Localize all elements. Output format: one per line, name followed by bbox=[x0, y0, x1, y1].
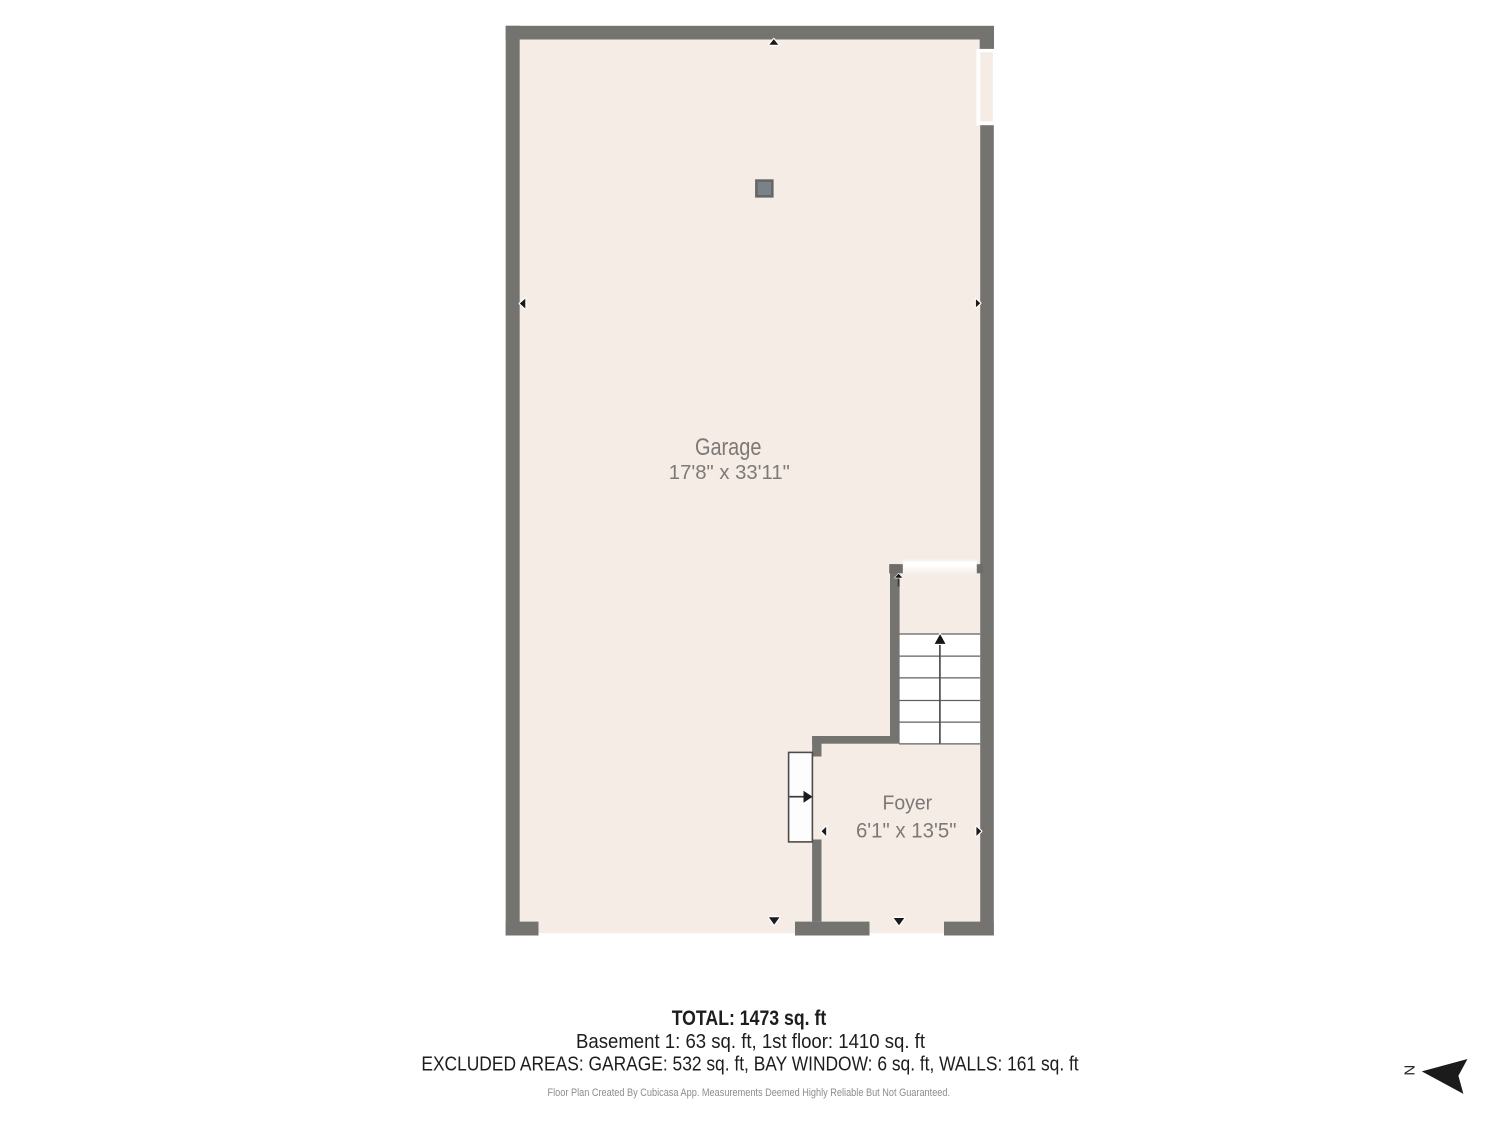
svg-text:6'1" x 13'5": 6'1" x 13'5" bbox=[856, 819, 957, 842]
svg-text:Foyer: Foyer bbox=[883, 792, 933, 814]
svg-text:Floor Plan Created By Cubicasa: Floor Plan Created By Cubicasa App. Meas… bbox=[548, 1087, 951, 1099]
svg-text:TOTAL: 1473 sq. ft: TOTAL: 1473 sq. ft bbox=[672, 1007, 827, 1030]
svg-text:17'8" x 33'11": 17'8" x 33'11" bbox=[669, 461, 790, 484]
svg-text:Garage: Garage bbox=[695, 434, 762, 461]
svg-text:Basement 1: 63 sq. ft, 1st flo: Basement 1: 63 sq. ft, 1st floor: 1410 s… bbox=[576, 1031, 925, 1053]
svg-text:EXCLUDED AREAS: GARAGE: 532 sq: EXCLUDED AREAS: GARAGE: 532 sq. ft, BAY … bbox=[421, 1054, 1079, 1076]
svg-text:N: N bbox=[1402, 1065, 1419, 1076]
